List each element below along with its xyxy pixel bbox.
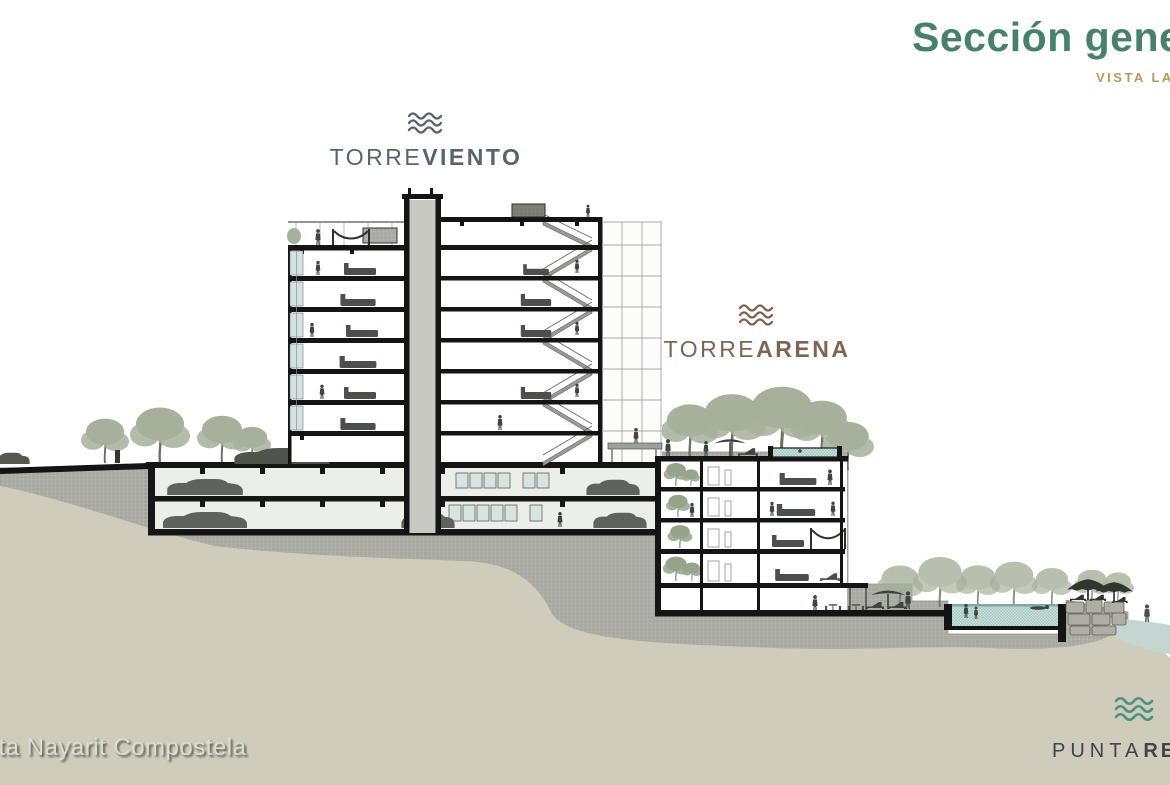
torre-arena-label: TORREARENA [657,304,857,363]
wave-icon [407,112,445,136]
watermark: rta Nayarit Compostela [0,734,246,762]
elevator-core [402,188,443,533]
wave-icon [738,304,776,328]
rooftop-pool [772,448,838,457]
torre-viento-label: TORREVIENTO [326,112,526,171]
brand-name: PUNTARE [1052,740,1170,763]
brand-logo: PUNTARE [1052,696,1170,763]
slide: Sección general VISTA LATERAL TORREVIENT… [0,0,1170,785]
page-title: Sección general [912,14,1170,61]
beach-person [1144,604,1150,622]
rooftop-swimmer [798,449,802,453]
torre-viento-name: TORREVIENTO [326,144,526,171]
brand-wave-icon [1114,696,1156,724]
page-subtitle: VISTA LATERAL [1096,70,1170,85]
street-car-small [0,453,30,464]
torre-arena-name: TORREARENA [657,336,857,363]
bollard [115,450,120,463]
roof-plants [287,228,301,244]
roof-equipment [512,204,590,217]
section-drawing [0,0,1170,785]
